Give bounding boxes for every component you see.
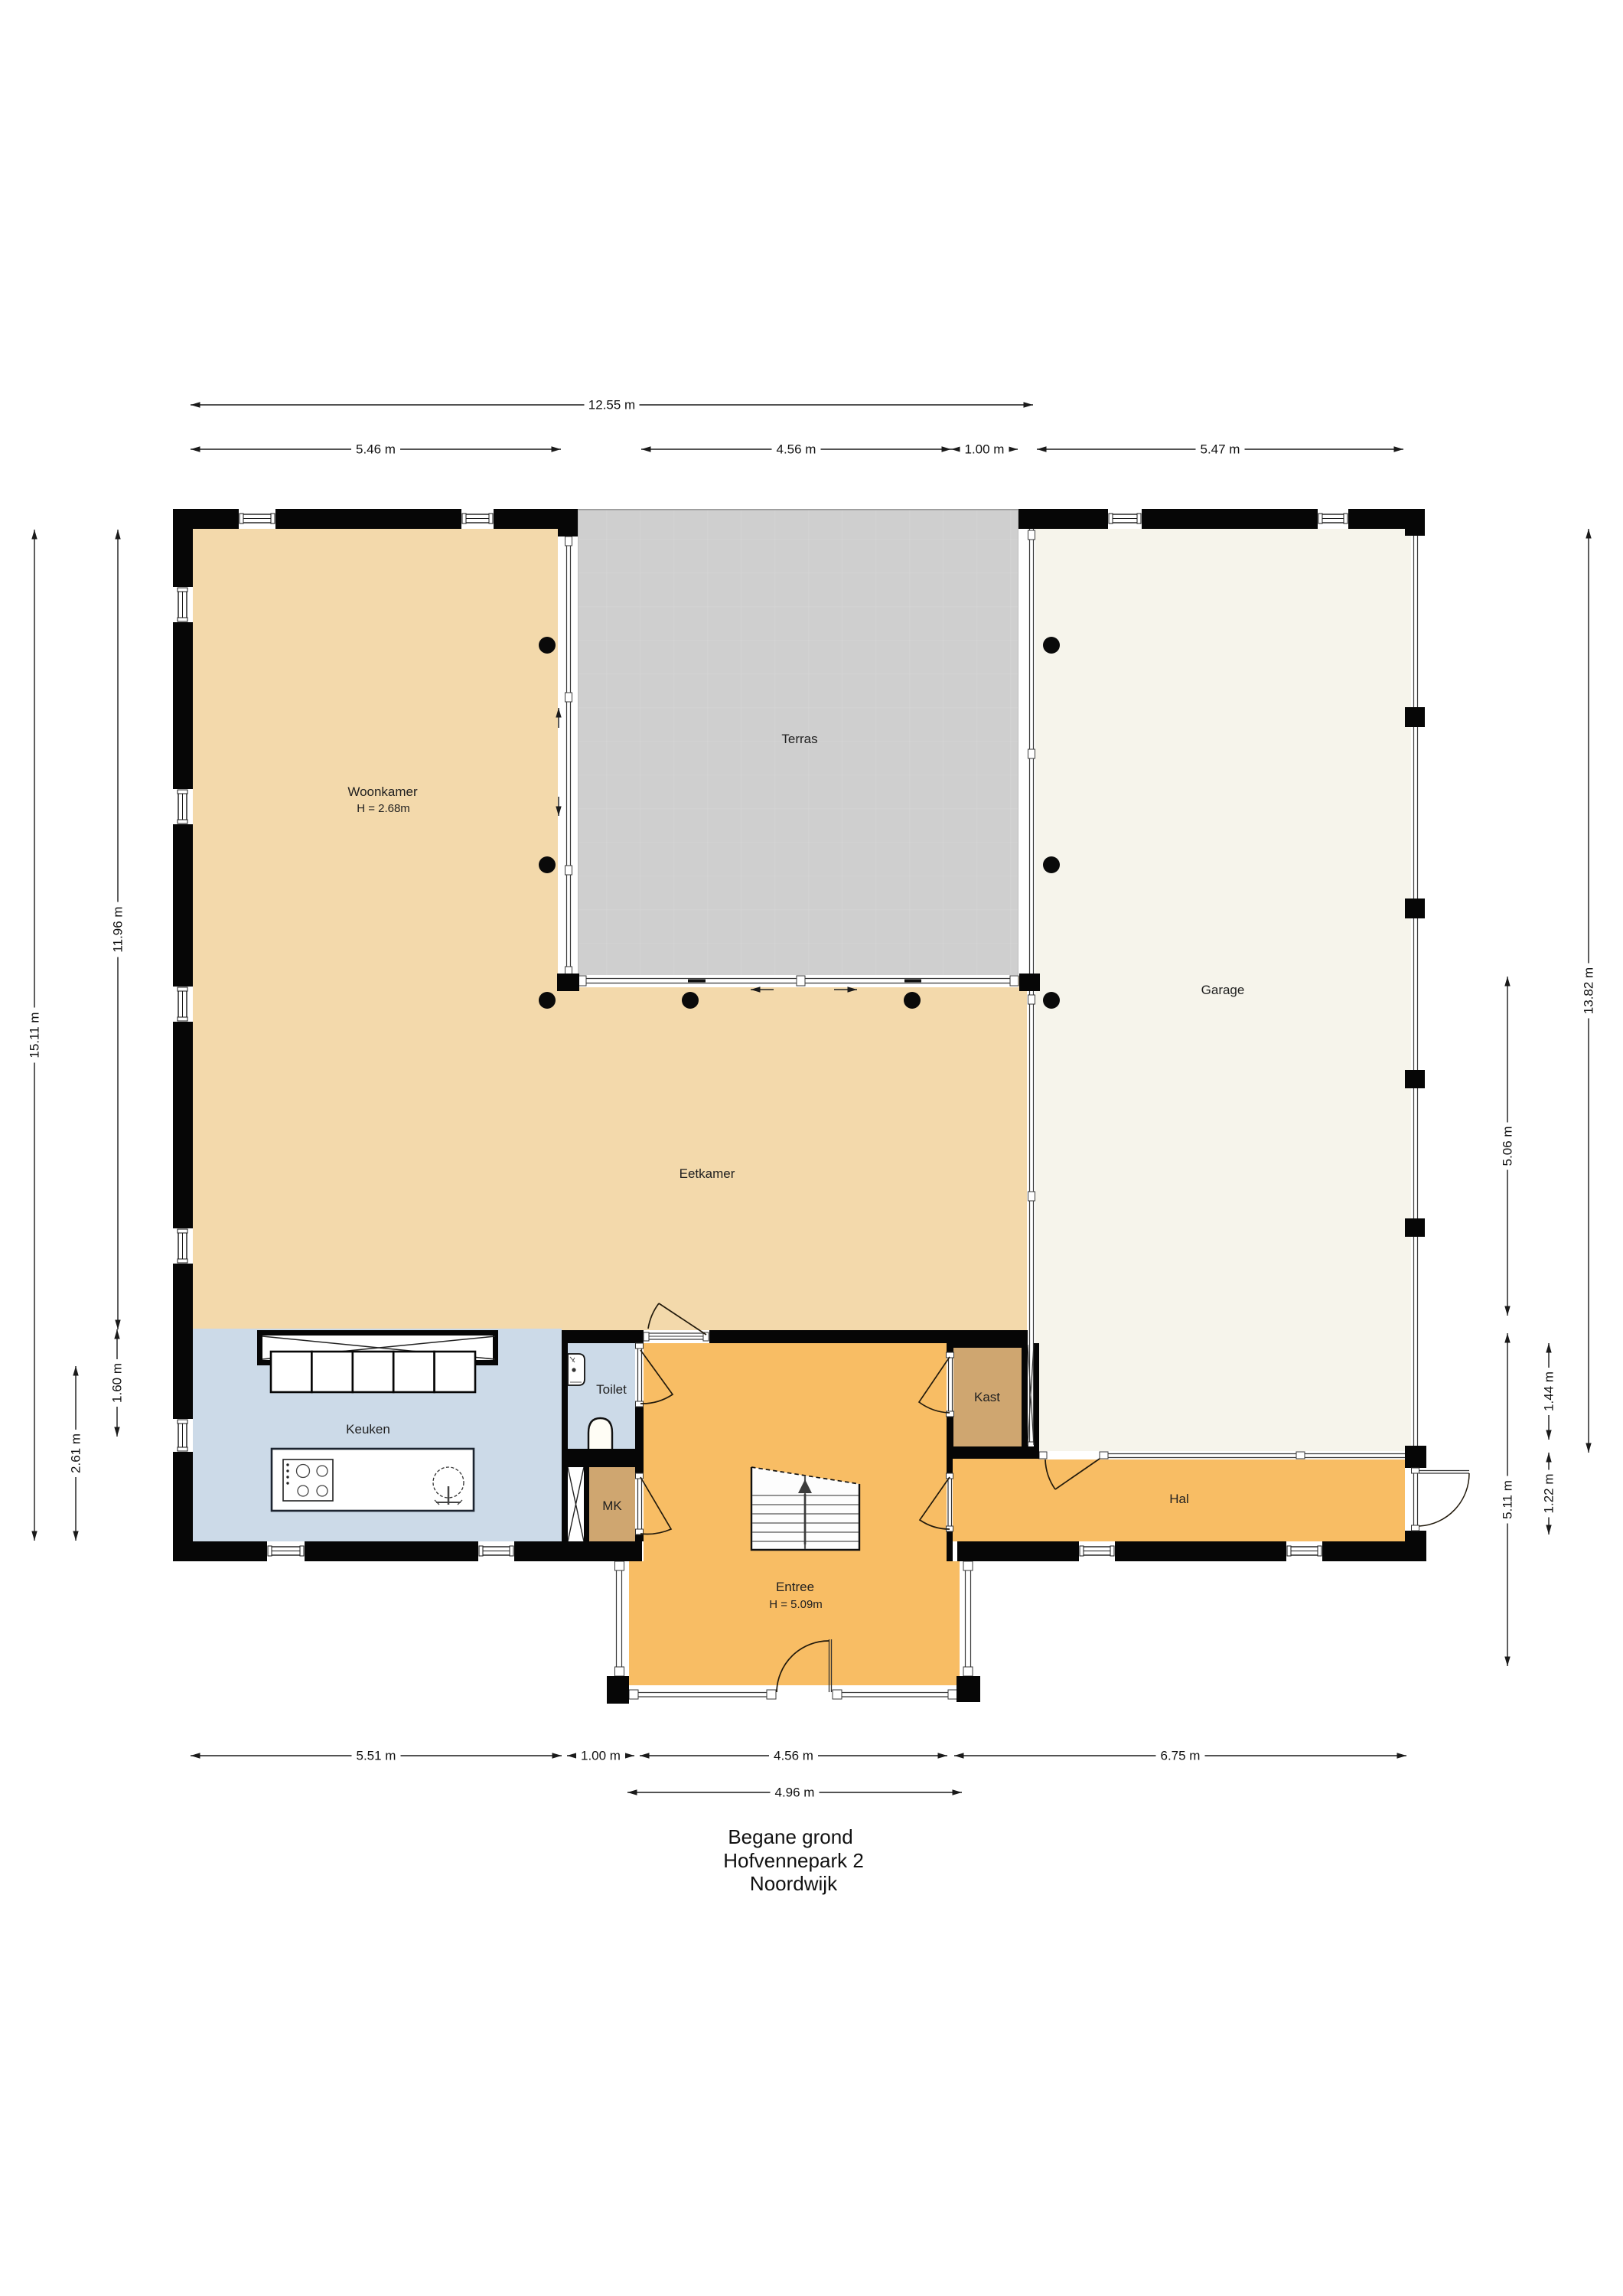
svg-text:H = 2.68m: H = 2.68m: [357, 802, 410, 815]
svg-text:Noordwijk: Noordwijk: [750, 1872, 838, 1895]
svg-text:12.55 m: 12.55 m: [588, 398, 635, 413]
svg-text:5.51 m: 5.51 m: [357, 1749, 396, 1763]
svg-text:Toilet: Toilet: [596, 1382, 627, 1397]
svg-text:6.75 m: 6.75 m: [1161, 1749, 1201, 1763]
svg-text:1.22 m: 1.22 m: [1542, 1474, 1556, 1514]
svg-text:4.56 m: 4.56 m: [777, 442, 816, 457]
svg-text:1.60 m: 1.60 m: [110, 1363, 125, 1403]
svg-text:1.44 m: 1.44 m: [1542, 1371, 1556, 1411]
svg-text:15.11 m: 15.11 m: [28, 1012, 42, 1058]
svg-text:Eetkamer: Eetkamer: [680, 1166, 735, 1181]
svg-text:1.00 m: 1.00 m: [965, 442, 1005, 457]
svg-text:Hofvennepark 2: Hofvennepark 2: [723, 1849, 864, 1872]
svg-text:5.11 m: 5.11 m: [1501, 1480, 1515, 1519]
svg-text:5.06 m: 5.06 m: [1501, 1127, 1515, 1166]
svg-text:Terras: Terras: [781, 732, 817, 746]
svg-text:5.47 m: 5.47 m: [1201, 442, 1240, 457]
svg-text:Begane grond: Begane grond: [728, 1825, 852, 1848]
svg-text:Entree: Entree: [776, 1580, 814, 1594]
svg-text:Garage: Garage: [1201, 983, 1245, 997]
svg-text:1.00 m: 1.00 m: [581, 1749, 621, 1763]
svg-text:MK: MK: [602, 1499, 622, 1513]
svg-text:2.61 m: 2.61 m: [69, 1433, 83, 1473]
svg-text:5.46 m: 5.46 m: [356, 442, 396, 457]
svg-text:Keuken: Keuken: [346, 1422, 390, 1437]
svg-text:11.96 m: 11.96 m: [111, 906, 125, 952]
svg-text:Kast: Kast: [974, 1390, 1000, 1404]
svg-text:H = 5.09m: H = 5.09m: [769, 1598, 823, 1611]
svg-text:Hal: Hal: [1169, 1492, 1189, 1506]
svg-text:4.96 m: 4.96 m: [775, 1786, 815, 1800]
svg-text:4.56 m: 4.56 m: [774, 1749, 813, 1763]
svg-text:Woonkamer: Woonkamer: [347, 784, 418, 799]
svg-text:13.82 m: 13.82 m: [1582, 967, 1596, 1014]
